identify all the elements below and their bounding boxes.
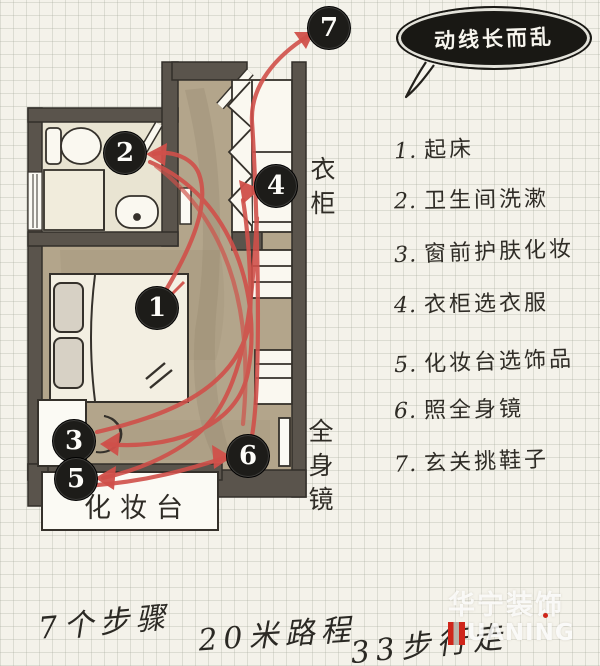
legend-num: 1. (394, 139, 418, 165)
speech-bubble-tail (404, 60, 438, 100)
graph-paper-page: 1 2 3 4 5 6 7 衣柜 全身镜 化妆台 动线长而乱 1. 起床 2. … (0, 0, 600, 666)
legend-num: 5. (394, 352, 418, 378)
watermark-brand: 华宁装饰 (448, 583, 598, 622)
watermark-latin: UANING (467, 620, 575, 646)
legend-num: 7. (394, 452, 418, 478)
wardrobe-unit (228, 80, 292, 232)
legend-label: 衣柜选衣服 (424, 285, 550, 319)
legend-num: 3. (394, 242, 418, 268)
legend-label: 起床 (423, 131, 474, 165)
legend-item-5: 5. 化妆台选饰品 (393, 341, 574, 379)
legend-label: 化妆台选饰品 (423, 341, 574, 378)
legend-label: 卫生间洗漱 (424, 181, 550, 215)
floor-plan-svg (0, 0, 600, 666)
legend-label: 窗前护肤化妆 (423, 231, 574, 268)
legend-item-2: 2. 卫生间洗漱 (394, 181, 550, 216)
step-marker-6: 6 (226, 434, 270, 478)
watermark: 华宁装饰 UANING (448, 583, 598, 646)
legend-item-4: 4. 衣柜选衣服 (394, 285, 550, 320)
legend-num: 6. (394, 399, 417, 424)
legend-item-6: 6. 照全身镜 (394, 391, 525, 425)
legend-label: 玄关挑鞋子 (423, 441, 549, 477)
step-marker-4: 4 (254, 164, 298, 208)
full-mirror-label: 全身镜 (301, 418, 337, 520)
step-marker-1: 1 (135, 286, 179, 330)
watermark-h-icon (448, 622, 465, 645)
legend-item-3: 3. 窗前护肤化妆 (393, 231, 574, 269)
watermark-dot-icon (543, 613, 548, 618)
pillow (54, 338, 83, 388)
legend-label: 照全身镜 (424, 391, 525, 425)
wardrobe-label: 衣柜 (303, 156, 339, 224)
legend-num: 4. (394, 293, 417, 318)
full-mirror-bar (279, 418, 290, 466)
legend-item-1: 1. 起床 (393, 131, 474, 166)
bathroom-window (28, 172, 42, 230)
dresser-label: 化妆台 (84, 486, 192, 525)
legend-num: 2. (394, 189, 417, 214)
sink (116, 196, 158, 228)
pillow (54, 283, 83, 332)
legend-item-7: 7. 玄关挑鞋子 (393, 441, 549, 478)
step-marker-2: 2 (103, 131, 147, 175)
bathtub (44, 170, 104, 230)
step-marker-7: 7 (307, 6, 351, 50)
speech-bubble-text: 动线长而乱 (434, 21, 555, 55)
toilet (46, 128, 101, 164)
